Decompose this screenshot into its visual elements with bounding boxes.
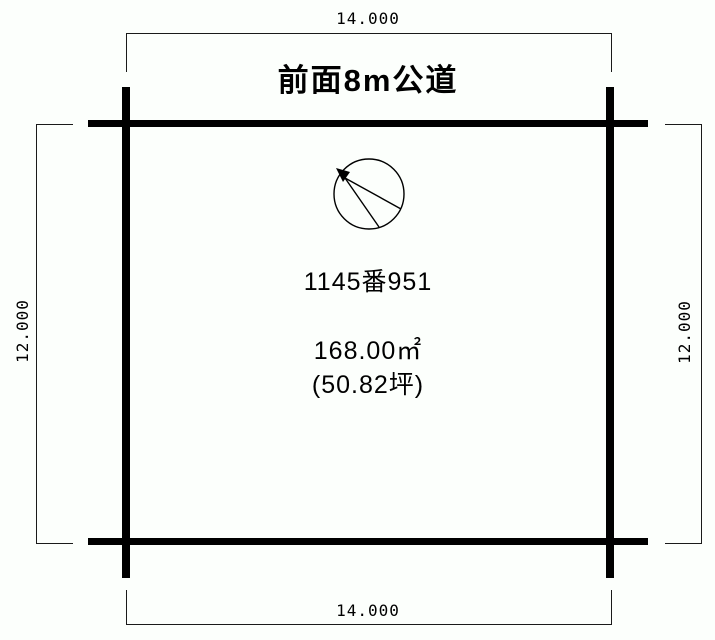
bottom-dimension-label: 14.000	[126, 601, 610, 620]
road-label: 前面8m公道	[126, 55, 610, 100]
boundary-line-top	[88, 120, 648, 127]
left-dimension-label: 12.000	[13, 291, 33, 371]
area-square-meters-label: 168.00㎡	[126, 331, 610, 367]
land-plot-diagram: 14.000 前面8m公道 12.000 12.000 1145番951 168…	[0, 0, 715, 640]
lot-number-label: 1145番951	[126, 262, 610, 298]
top-dimension-label: 14.000	[126, 9, 610, 28]
left-dimension-bracket	[36, 124, 73, 544]
right-dimension-label: 12.000	[675, 292, 695, 372]
area-tsubo-label: (50.82坪)	[126, 365, 610, 401]
boundary-line-bottom	[88, 538, 648, 545]
north-compass-icon	[330, 155, 408, 233]
